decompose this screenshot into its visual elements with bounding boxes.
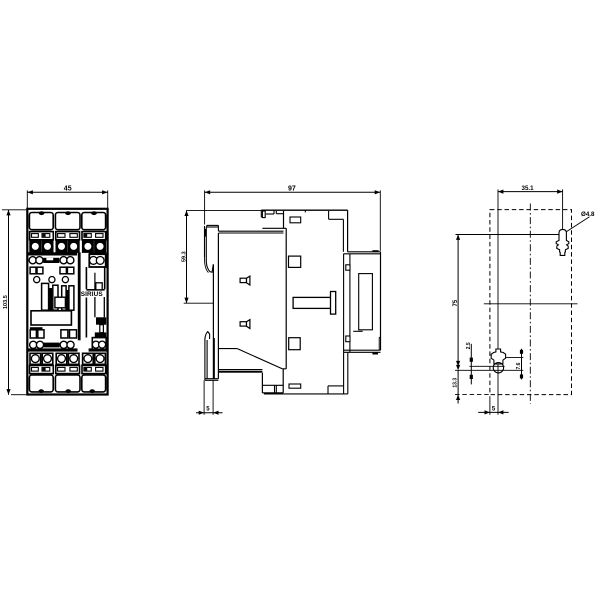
- svg-text:97: 97: [288, 186, 296, 193]
- svg-text:2.5: 2.5: [466, 342, 472, 349]
- svg-text:13.3: 13.3: [453, 378, 459, 388]
- svg-text:SIRIUS: SIRIUS: [81, 291, 104, 298]
- svg-text:59.3: 59.3: [181, 251, 187, 262]
- svg-text:7.6: 7.6: [516, 362, 522, 369]
- svg-text:35.1: 35.1: [522, 185, 535, 192]
- svg-text:45: 45: [64, 186, 72, 193]
- svg-text:103.5: 103.5: [3, 295, 9, 309]
- svg-text:75: 75: [453, 299, 459, 306]
- svg-text:Ø4.8: Ø4.8: [581, 211, 595, 218]
